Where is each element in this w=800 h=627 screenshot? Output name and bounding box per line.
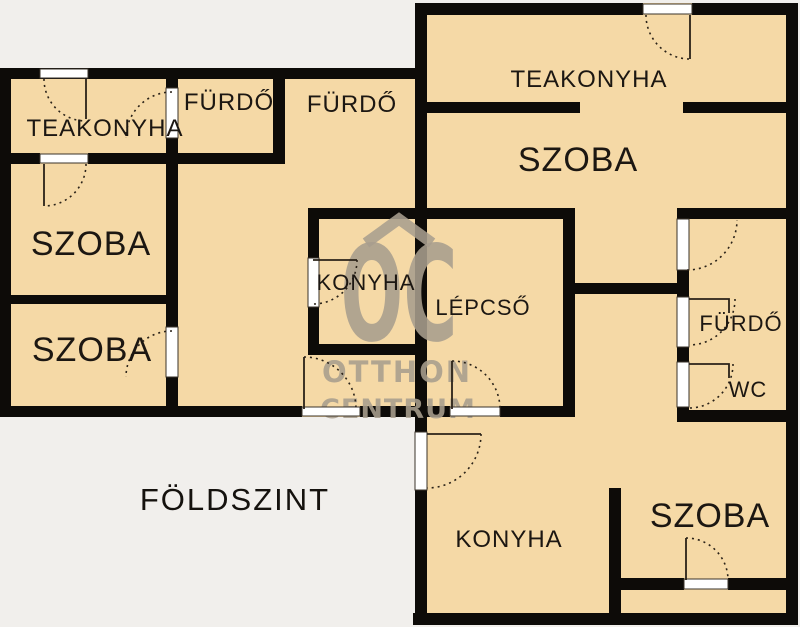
room-label-szoba-left-1: SZOBA <box>31 225 151 263</box>
wall-segment <box>415 490 427 613</box>
room-label-szoba-left-2: SZOBA <box>32 331 152 369</box>
room-label-wc: WC <box>729 377 768 402</box>
door-opening <box>302 407 360 416</box>
door-opening <box>643 4 692 14</box>
room-label-furdo-top-1: FÜRDŐ <box>184 89 274 116</box>
door-opening <box>684 579 728 589</box>
door-opening <box>415 432 427 490</box>
room-label-furdo-right: FÜRDŐ <box>699 311 782 336</box>
wall-segment <box>563 283 689 294</box>
room-label-furdo-top-2: FÜRDŐ <box>307 91 397 118</box>
wall-segment <box>728 578 798 590</box>
wall-segment <box>413 613 798 625</box>
floor-plan: OC OTTHON CENTRUM <box>0 0 800 627</box>
wall-segment <box>563 208 575 417</box>
wall-segment <box>166 377 178 417</box>
door-opening <box>677 297 689 347</box>
wall-segment <box>677 410 798 422</box>
door-opening <box>166 327 178 377</box>
wall-segment <box>415 3 643 15</box>
door-opening <box>40 69 88 78</box>
wall-segment <box>677 347 689 362</box>
wall-segment <box>0 406 302 417</box>
room-label-szoba-right: SZOBA <box>518 141 638 179</box>
wall-segment <box>786 3 798 625</box>
room-label-lepcso: LÉPCSŐ <box>435 295 530 320</box>
room-label-konyha-center: KONYHA <box>317 270 416 295</box>
wall-segment <box>273 68 285 164</box>
wall-segment <box>166 68 178 88</box>
wall-segment <box>692 3 798 15</box>
wall-segment <box>609 488 621 623</box>
wall-segment <box>308 208 575 219</box>
page-title: FÖLDSZINT <box>140 482 330 517</box>
room-label-teakonyha-left: TEAKONYHA <box>26 115 183 142</box>
wall-segment <box>677 208 689 219</box>
wall-segment <box>621 578 684 590</box>
wall-segment <box>308 208 319 258</box>
watermark-line1: OTTHON <box>322 355 472 389</box>
door-opening <box>40 154 88 163</box>
wall-segment <box>0 68 11 417</box>
wall-segment <box>683 102 798 113</box>
room-label-teakonyha-right: TEAKONYHA <box>510 66 667 93</box>
door-opening <box>450 407 500 416</box>
door-opening <box>677 219 689 270</box>
wall-segment <box>0 153 40 164</box>
wall-segment <box>427 102 580 113</box>
door-opening <box>677 362 689 407</box>
room-label-konyha-bottom: KONYHA <box>455 526 562 553</box>
room-label-szoba-bottom: SZOBA <box>650 497 770 535</box>
wall-segment <box>500 406 563 417</box>
floor-plan-drawing: OC OTTHON CENTRUM <box>0 0 800 627</box>
wall-segment <box>88 153 285 164</box>
wall-segment <box>0 295 178 304</box>
wall-segment <box>677 208 798 219</box>
